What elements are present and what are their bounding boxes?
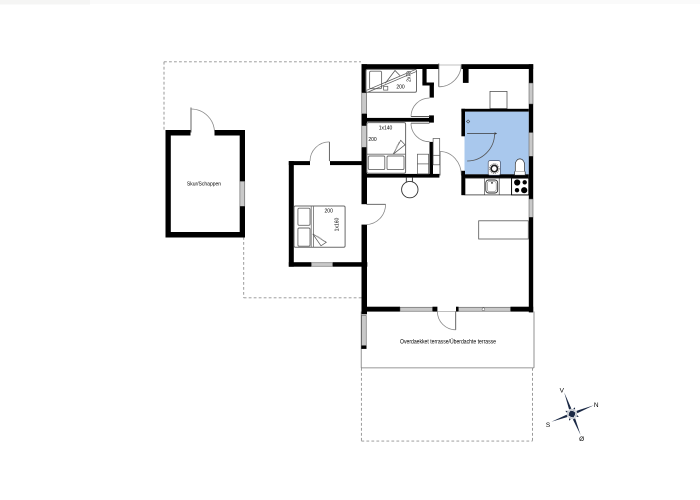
svg-text:1x140: 1x140 bbox=[379, 126, 393, 132]
svg-text:2x70: 2x70 bbox=[407, 71, 413, 82]
svg-text:Ø: Ø bbox=[579, 436, 584, 443]
svg-text:1x160: 1x160 bbox=[335, 217, 341, 231]
svg-text:Overdaekket terrasse/Überdacht: Overdaekket terrasse/Überdachte terrasse bbox=[400, 339, 496, 346]
svg-text:S: S bbox=[546, 422, 551, 429]
svg-text:V: V bbox=[560, 388, 565, 395]
svg-text:200: 200 bbox=[325, 209, 334, 215]
svg-text:200: 200 bbox=[396, 85, 405, 91]
svg-text:Skur/Schappen: Skur/Schappen bbox=[187, 182, 221, 188]
svg-text:200: 200 bbox=[368, 137, 377, 143]
svg-text:N: N bbox=[594, 402, 599, 409]
